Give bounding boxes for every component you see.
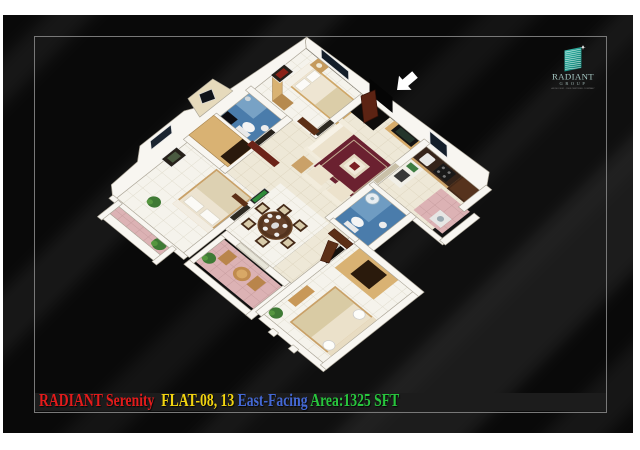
svg-text:AN ISO 9001 : 2008 CERTIFIED C: AN ISO 9001 : 2008 CERTIFIED COMPANY (551, 87, 595, 90)
svg-text:GROUP: GROUP (560, 81, 588, 86)
